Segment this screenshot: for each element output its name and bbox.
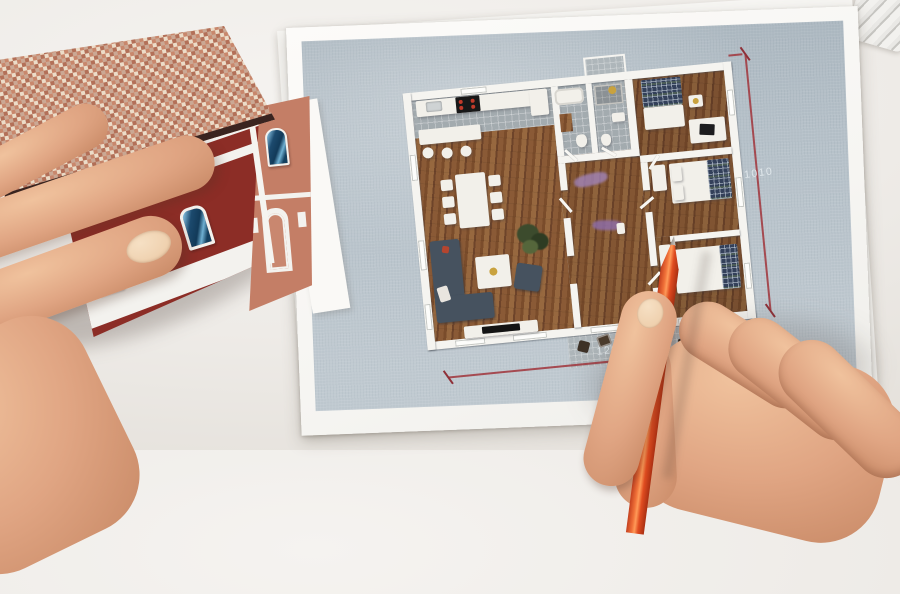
bed-blanket bbox=[640, 76, 683, 108]
stove bbox=[455, 95, 480, 113]
burner bbox=[459, 106, 463, 110]
dining-chair bbox=[488, 174, 501, 186]
sink bbox=[426, 101, 443, 113]
burner bbox=[471, 105, 475, 109]
lamp bbox=[692, 98, 699, 105]
coffee-table bbox=[475, 254, 512, 289]
sofa-pillow bbox=[442, 246, 450, 254]
photo-scene: 1010 1290 bbox=[0, 0, 900, 450]
dining-chair bbox=[440, 179, 453, 191]
left-thumb-nail bbox=[122, 225, 175, 269]
burner bbox=[459, 100, 463, 104]
bathtub bbox=[554, 87, 584, 106]
sink-vanity bbox=[612, 112, 626, 122]
left-hand bbox=[0, 0, 320, 450]
dining-chair bbox=[442, 196, 455, 208]
nightstand bbox=[688, 94, 703, 107]
bed-duvet bbox=[643, 104, 685, 130]
armchair bbox=[513, 262, 543, 292]
dining-chair bbox=[490, 191, 503, 203]
bath-mat bbox=[559, 113, 573, 132]
right-index-nail bbox=[634, 295, 667, 331]
dining-chair bbox=[444, 213, 457, 225]
burner bbox=[470, 99, 474, 103]
left-palm bbox=[0, 296, 160, 594]
table-decor bbox=[489, 267, 498, 276]
laptop bbox=[699, 124, 714, 136]
dining-chair bbox=[491, 208, 504, 220]
dining-table bbox=[455, 172, 490, 229]
fridge bbox=[529, 88, 549, 116]
right-hand bbox=[560, 180, 900, 450]
